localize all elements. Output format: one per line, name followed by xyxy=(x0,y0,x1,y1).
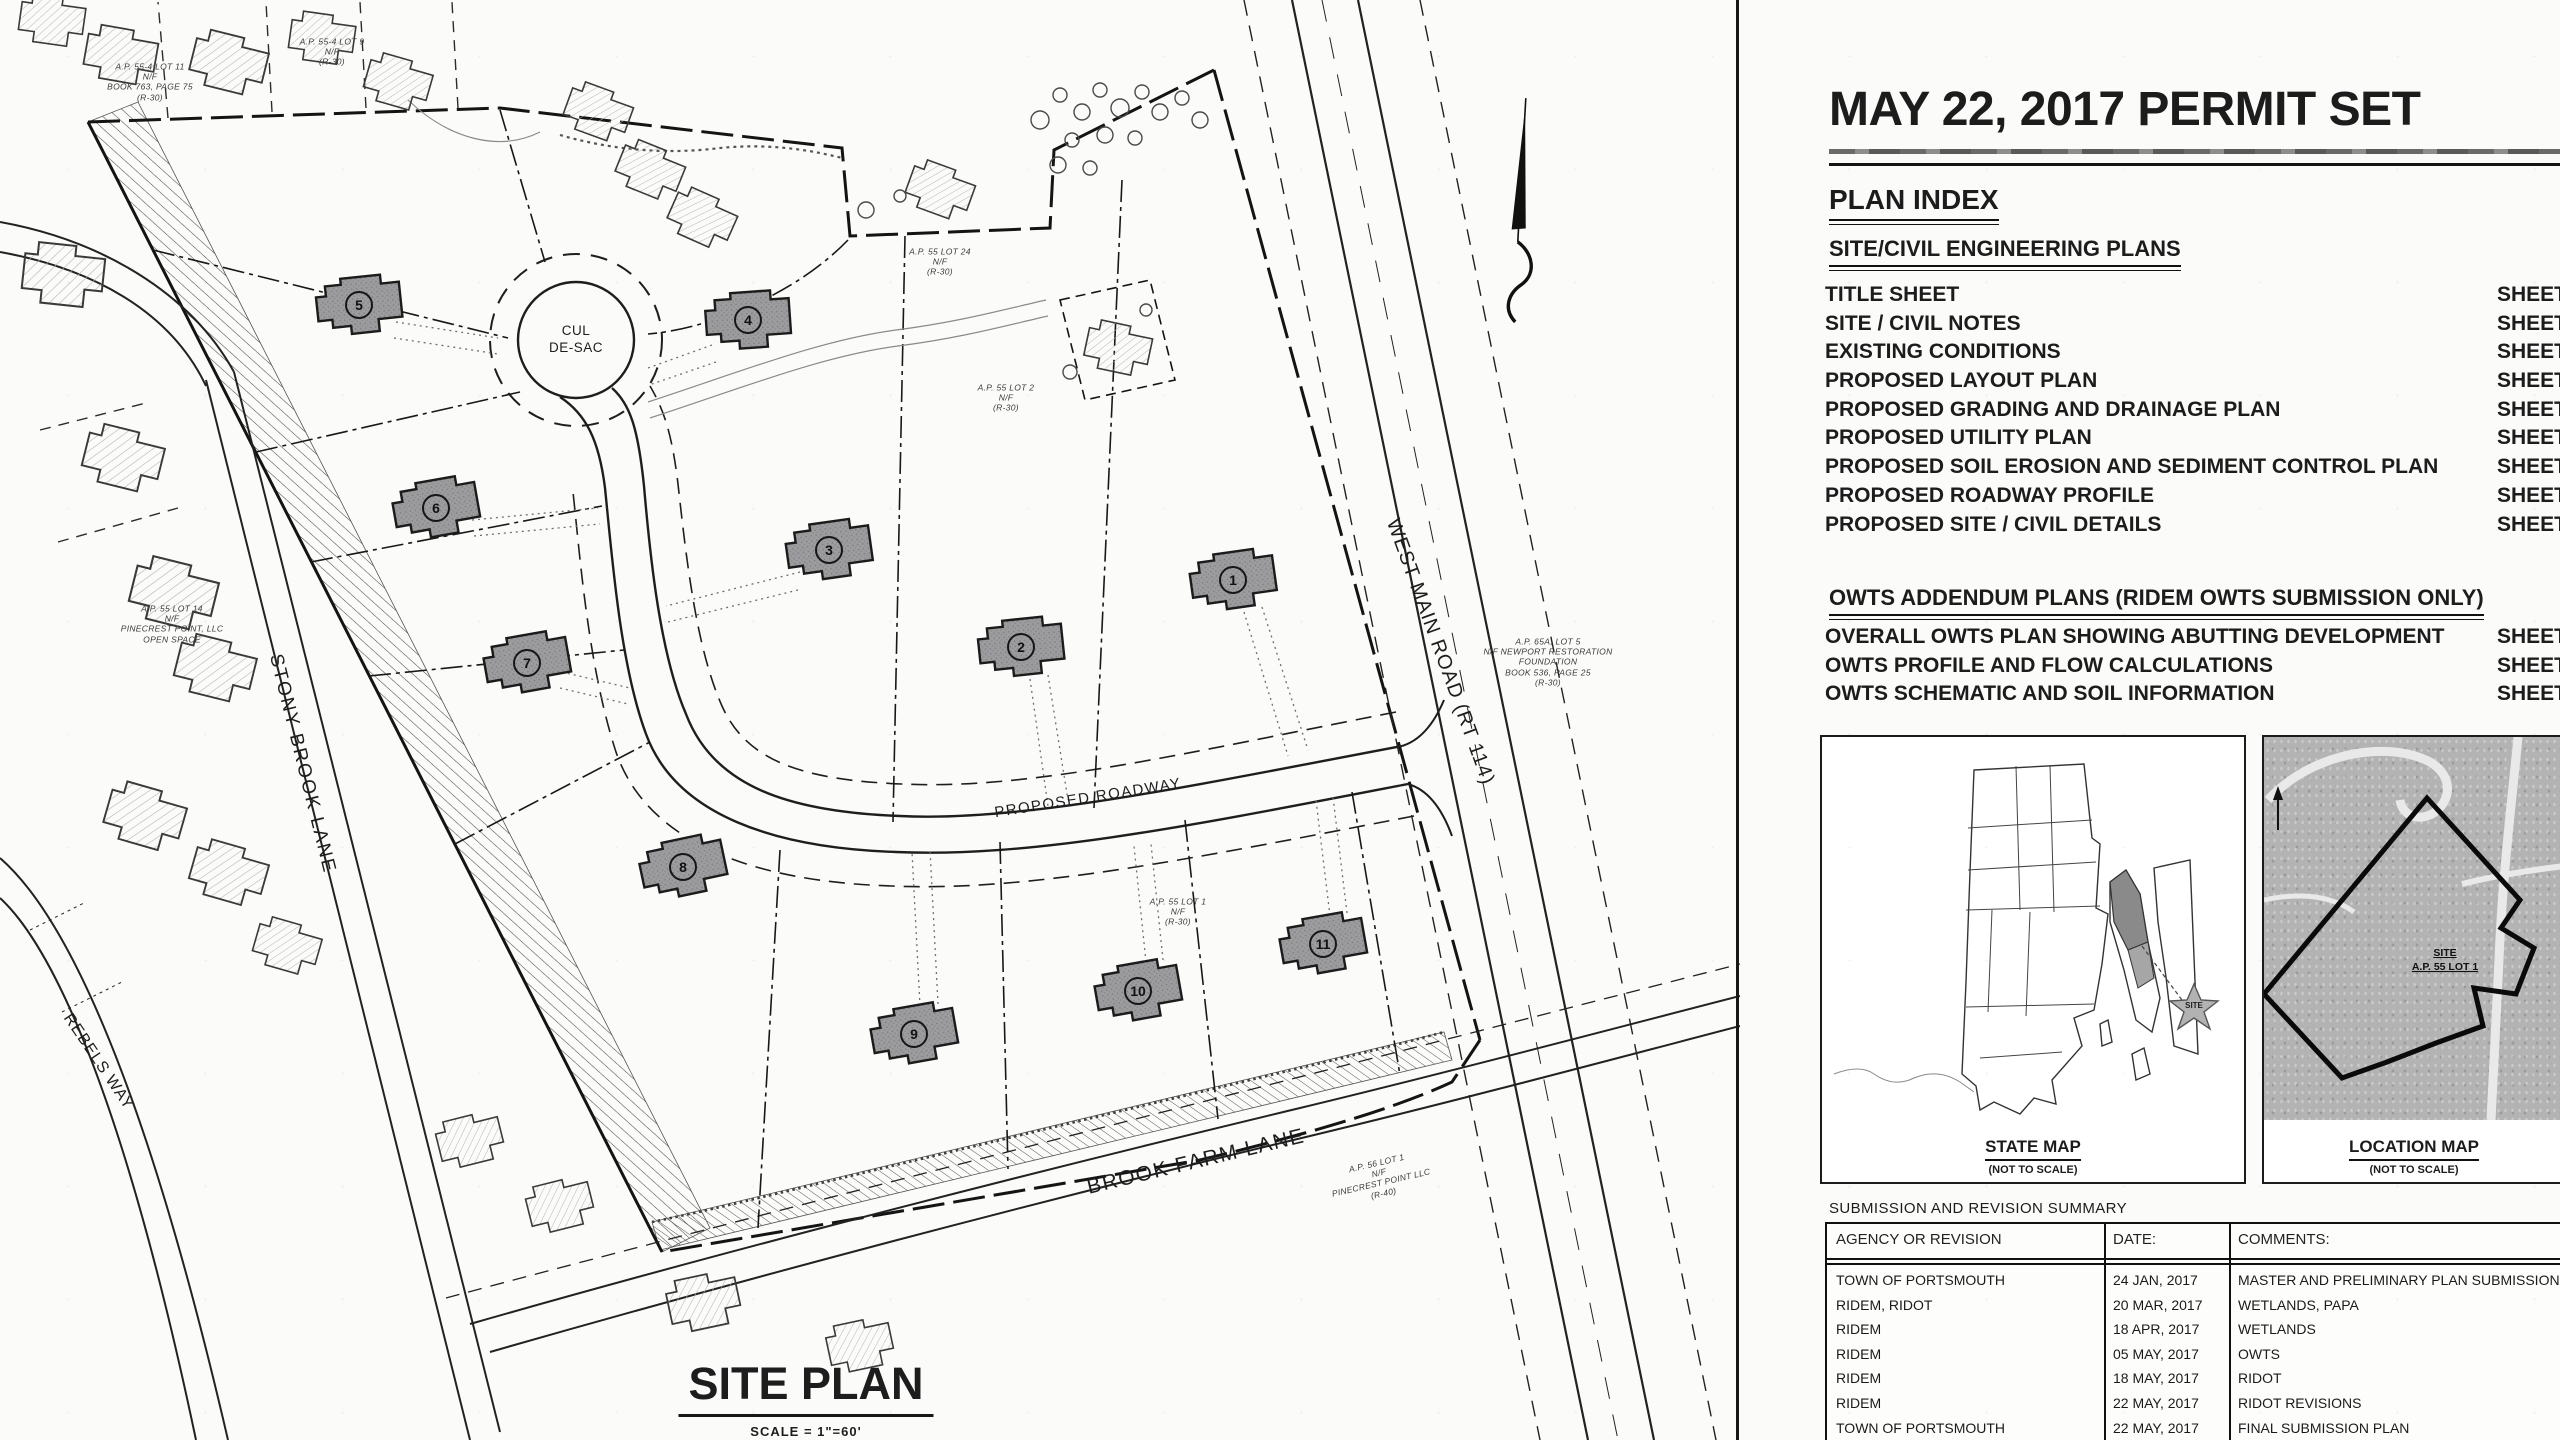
lot-number: 2 xyxy=(1017,639,1025,655)
north-arrow-icon xyxy=(1505,98,1543,323)
plan-index-row-sheet: SHEET xyxy=(2497,367,2560,396)
plan-index-row-label: PROPOSED ROADWAY PROFILE xyxy=(1825,484,2154,507)
plan-index-heading-text: PLAN INDEX xyxy=(1829,184,1999,221)
plan-index-row-label: PROPOSED LAYOUT PLAN xyxy=(1825,369,2097,392)
lot-number: 9 xyxy=(910,1026,918,1042)
comments-cell: OWTS xyxy=(2238,1342,2280,1367)
plan-index-row-label: OWTS SCHEMATIC AND SOIL INFORMATION xyxy=(1825,682,2275,705)
agency-cell: TOWN OF PORTSMOUTH xyxy=(1836,1268,2005,1293)
location-map-label: LOCATION MAP xyxy=(2349,1137,2479,1161)
table-header-row: AGENCY OR REVISION DATE: COMMENTS: xyxy=(1827,1224,2560,1258)
state-map-site-label: SITE xyxy=(2185,1001,2203,1010)
state-map-box: SITE STATE MAP (NOT TO SCALE) xyxy=(1820,735,2246,1184)
plan-index-row-label: PROPOSED SITE / CIVIL DETAILS xyxy=(1825,513,2161,536)
comments-cell: RIDOT xyxy=(2238,1366,2282,1391)
date-cell: 18 MAY, 2017 xyxy=(2113,1366,2199,1391)
agency-cell: TOWN OF PORTSMOUTH xyxy=(1836,1416,2005,1440)
date-cell: 24 JAN, 2017 xyxy=(2113,1268,2198,1293)
comments-cell: FINAL SUBMISSION PLAN xyxy=(2238,1416,2409,1440)
site-plan-title: SITE PLAN xyxy=(678,1358,933,1417)
sheet-divider-line xyxy=(1736,0,1739,1440)
header-rule-2 xyxy=(1827,1263,2560,1265)
comments-cell: WETLANDS, PAPA xyxy=(2238,1293,2359,1318)
lot-number: 4 xyxy=(744,312,752,328)
location-map-box: SITE A.P. 55 LOT 1 LOCATION MAP (NOT TO … xyxy=(2262,735,2560,1184)
location-map-note: (NOT TO SCALE) xyxy=(2264,1164,2560,1176)
state-map-label: STATE MAP xyxy=(1985,1137,2081,1161)
plan-index-row: OWTS PROFILE AND FLOW CALCULATIONS SHEET xyxy=(1825,652,2560,681)
header-rule xyxy=(1827,1258,2560,1260)
date-cell: 22 MAY, 2017 xyxy=(2113,1391,2199,1416)
plan-index-row-sheet: SHEET xyxy=(2497,482,2560,511)
plan-index-row-sheet: SHEET xyxy=(2497,511,2560,540)
plan-index-row: PROPOSED GRADING AND DRAINAGE PLAN SHEET xyxy=(1825,396,2560,425)
plan-index-row: TITLE SHEET SHEET xyxy=(1825,281,2560,310)
lot-number: 10 xyxy=(1130,983,1146,999)
wetland-hatch-strips xyxy=(88,102,1452,1252)
owts-plans-heading-text: OWTS ADDENDUM PLANS (RIDEM OWTS SUBMISSI… xyxy=(1829,585,2484,616)
owts-plans-heading: OWTS ADDENDUM PLANS (RIDEM OWTS SUBMISSI… xyxy=(1829,585,2484,616)
date-cell: 05 MAY, 2017 xyxy=(2113,1342,2199,1367)
agency-cell: RIDEM xyxy=(1836,1342,1881,1367)
civil-plans-list: TITLE SHEET SHEET SITE / CIVIL NOTES SHE… xyxy=(1825,281,2560,539)
site-plan-drawing: 1 2 3 4 5 6 7 8 9 10 11 xyxy=(0,0,1740,1440)
civil-plans-heading: SITE/CIVIL ENGINEERING PLANS xyxy=(1829,236,2181,267)
proposed-houses xyxy=(314,273,1369,1069)
permit-set-title: MAY 22, 2017 PERMIT SET xyxy=(1829,82,2420,137)
state-map-drawing: SITE xyxy=(1822,737,2244,1182)
plan-index-row-sheet: SHEET xyxy=(2497,396,2560,425)
parcel-annotation: A.P. 55-4 LOT 11 N/F BOOK 763, PAGE 75 (… xyxy=(107,62,193,103)
plan-index-row: PROPOSED LAYOUT PLAN SHEET xyxy=(1825,367,2560,396)
date-cell: 18 APR, 2017 xyxy=(2113,1317,2199,1342)
plan-index-row-sheet: SHEET xyxy=(2497,652,2560,681)
title-rule-thin xyxy=(1829,163,2560,166)
lot-number: 7 xyxy=(523,655,531,671)
table-row: TOWN OF PORTSMOUTH 22 MAY, 2017 FINAL SU… xyxy=(1827,1416,2560,1440)
lot-number: 3 xyxy=(825,542,833,558)
proposed-roadway-lines xyxy=(490,254,1452,887)
plan-index-row-sheet: SHEET xyxy=(2497,453,2560,482)
comments-cell: RIDOT REVISIONS xyxy=(2238,1391,2361,1416)
permit-set-sheet: 1 2 3 4 5 6 7 8 9 10 11 xyxy=(0,0,2560,1440)
parcel-annotation: A.P. 55 LOT 14 N/F PINECREST POINT, LLC … xyxy=(121,604,224,645)
revision-summary-title: SUBMISSION AND REVISION SUMMARY xyxy=(1829,1200,2127,1217)
table-row: RIDEM 05 MAY, 2017 OWTS xyxy=(1827,1342,2560,1367)
owts-plans-list: OVERALL OWTS PLAN SHOWING ABUTTING DEVEL… xyxy=(1825,623,2560,709)
state-map-note: (NOT TO SCALE) xyxy=(1822,1164,2244,1176)
table-row: RIDEM, RIDOT 20 MAR, 2017 WETLANDS, PAPA xyxy=(1827,1293,2560,1318)
comments-cell: MASTER AND PRELIMINARY PLAN SUBMISSION xyxy=(2238,1268,2560,1293)
location-site-label-line1: SITE xyxy=(2433,947,2456,959)
lot-number: 11 xyxy=(1316,936,1331,952)
lot-number: 5 xyxy=(355,297,363,313)
date-cell: 22 MAY, 2017 xyxy=(2113,1416,2199,1440)
location-map-drawing: SITE A.P. 55 LOT 1 xyxy=(2264,737,2560,1120)
west-main-road xyxy=(1244,0,1716,1440)
plan-index-row: SITE / CIVIL NOTES SHEET xyxy=(1825,310,2560,339)
location-site-label-line2: A.P. 55 LOT 1 xyxy=(2412,961,2478,973)
plan-index-row-label: OVERALL OWTS PLAN SHOWING ABUTTING DEVEL… xyxy=(1825,625,2445,648)
rebels-way-road xyxy=(0,858,228,1440)
lot-number: 1 xyxy=(1229,572,1237,588)
plan-index-row-sheet: SHEET xyxy=(2497,424,2560,453)
plan-index-heading: PLAN INDEX xyxy=(1829,184,1999,221)
plan-index-row-sheet: SHEET xyxy=(2497,338,2560,367)
plan-index-row-label: EXISTING CONDITIONS xyxy=(1825,340,2061,363)
lot-number: 8 xyxy=(679,859,687,875)
site-plan-scale-note: SCALE = 1"=60' xyxy=(750,1424,861,1439)
column-header: DATE: xyxy=(2113,1231,2156,1248)
parcel-annotation: A.P. 55-4 LOT 9 N/F (R-30) xyxy=(300,37,365,68)
plan-index-row: PROPOSED SOIL EROSION AND SEDIMENT CONTR… xyxy=(1825,453,2560,482)
parcel-annotation: A.P. 55 LOT 24 N/F (R-30) xyxy=(909,247,971,278)
date-cell: 20 MAR, 2017 xyxy=(2113,1293,2203,1318)
parcel-annotation: A.P. 55 LOT 2 N/F (R-30) xyxy=(978,383,1035,414)
agency-cell: RIDEM xyxy=(1836,1317,1881,1342)
plan-index-row: EXISTING CONDITIONS SHEET xyxy=(1825,338,2560,367)
agency-cell: RIDEM xyxy=(1836,1391,1881,1416)
table-row: TOWN OF PORTSMOUTH 24 JAN, 2017 MASTER A… xyxy=(1827,1268,2560,1293)
plan-index-row-label: SITE / CIVIL NOTES xyxy=(1825,312,2021,335)
plan-index-row-sheet: SHEET xyxy=(2497,623,2560,652)
plan-index-row: PROPOSED UTILITY PLAN SHEET xyxy=(1825,424,2560,453)
comments-cell: WETLANDS xyxy=(2238,1317,2316,1342)
parcel-annotation: A.P. 55 LOT 1 N/F (R-30) xyxy=(1150,897,1207,928)
table-body: TOWN OF PORTSMOUTH 24 JAN, 2017 MASTER A… xyxy=(1827,1268,2560,1440)
plan-index-row: OVERALL OWTS PLAN SHOWING ABUTTING DEVEL… xyxy=(1825,623,2560,652)
plan-index-row-sheet: SHEET xyxy=(2497,680,2560,709)
plan-index-row-sheet: SHEET xyxy=(2497,281,2560,310)
lot-number: 6 xyxy=(432,500,440,516)
agency-cell: RIDEM xyxy=(1836,1366,1881,1391)
column-header: COMMENTS: xyxy=(2238,1231,2330,1248)
revision-summary-table: AGENCY OR REVISION DATE: COMMENTS: TOWN … xyxy=(1825,1222,2560,1440)
parcel-annotation: A.P. 65A, LOT 5 N/F NEWPORT RESTORATION … xyxy=(1483,637,1612,688)
tree-symbols xyxy=(858,83,1208,379)
table-row: RIDEM 18 APR, 2017 WETLANDS xyxy=(1827,1317,2560,1342)
plan-index-row-label: PROPOSED SOIL EROSION AND SEDIMENT CONTR… xyxy=(1825,455,2438,478)
column-header: AGENCY OR REVISION xyxy=(1836,1231,2002,1248)
plan-index-row: OWTS SCHEMATIC AND SOIL INFORMATION SHEE… xyxy=(1825,680,2560,709)
agency-cell: RIDEM, RIDOT xyxy=(1836,1293,1932,1318)
table-row: RIDEM 18 MAY, 2017 RIDOT xyxy=(1827,1366,2560,1391)
plan-index-row-label: OWTS PROFILE AND FLOW CALCULATIONS xyxy=(1825,654,2273,677)
plan-index-row-label: PROPOSED UTILITY PLAN xyxy=(1825,426,2092,449)
plan-index-row-label: TITLE SHEET xyxy=(1825,283,1959,306)
plan-index-row-label: PROPOSED GRADING AND DRAINAGE PLAN xyxy=(1825,398,2280,421)
plan-index-row-sheet: SHEET xyxy=(2497,310,2560,339)
cul-de-sac-label: CUL DE-SAC xyxy=(549,323,603,357)
table-row: RIDEM 22 MAY, 2017 RIDOT REVISIONS xyxy=(1827,1391,2560,1416)
plan-index-row: PROPOSED SITE / CIVIL DETAILS SHEET xyxy=(1825,511,2560,540)
plan-index-row: PROPOSED ROADWAY PROFILE SHEET xyxy=(1825,482,2560,511)
title-rule-thick xyxy=(1829,149,2560,154)
civil-plans-heading-text: SITE/CIVIL ENGINEERING PLANS xyxy=(1829,236,2181,267)
